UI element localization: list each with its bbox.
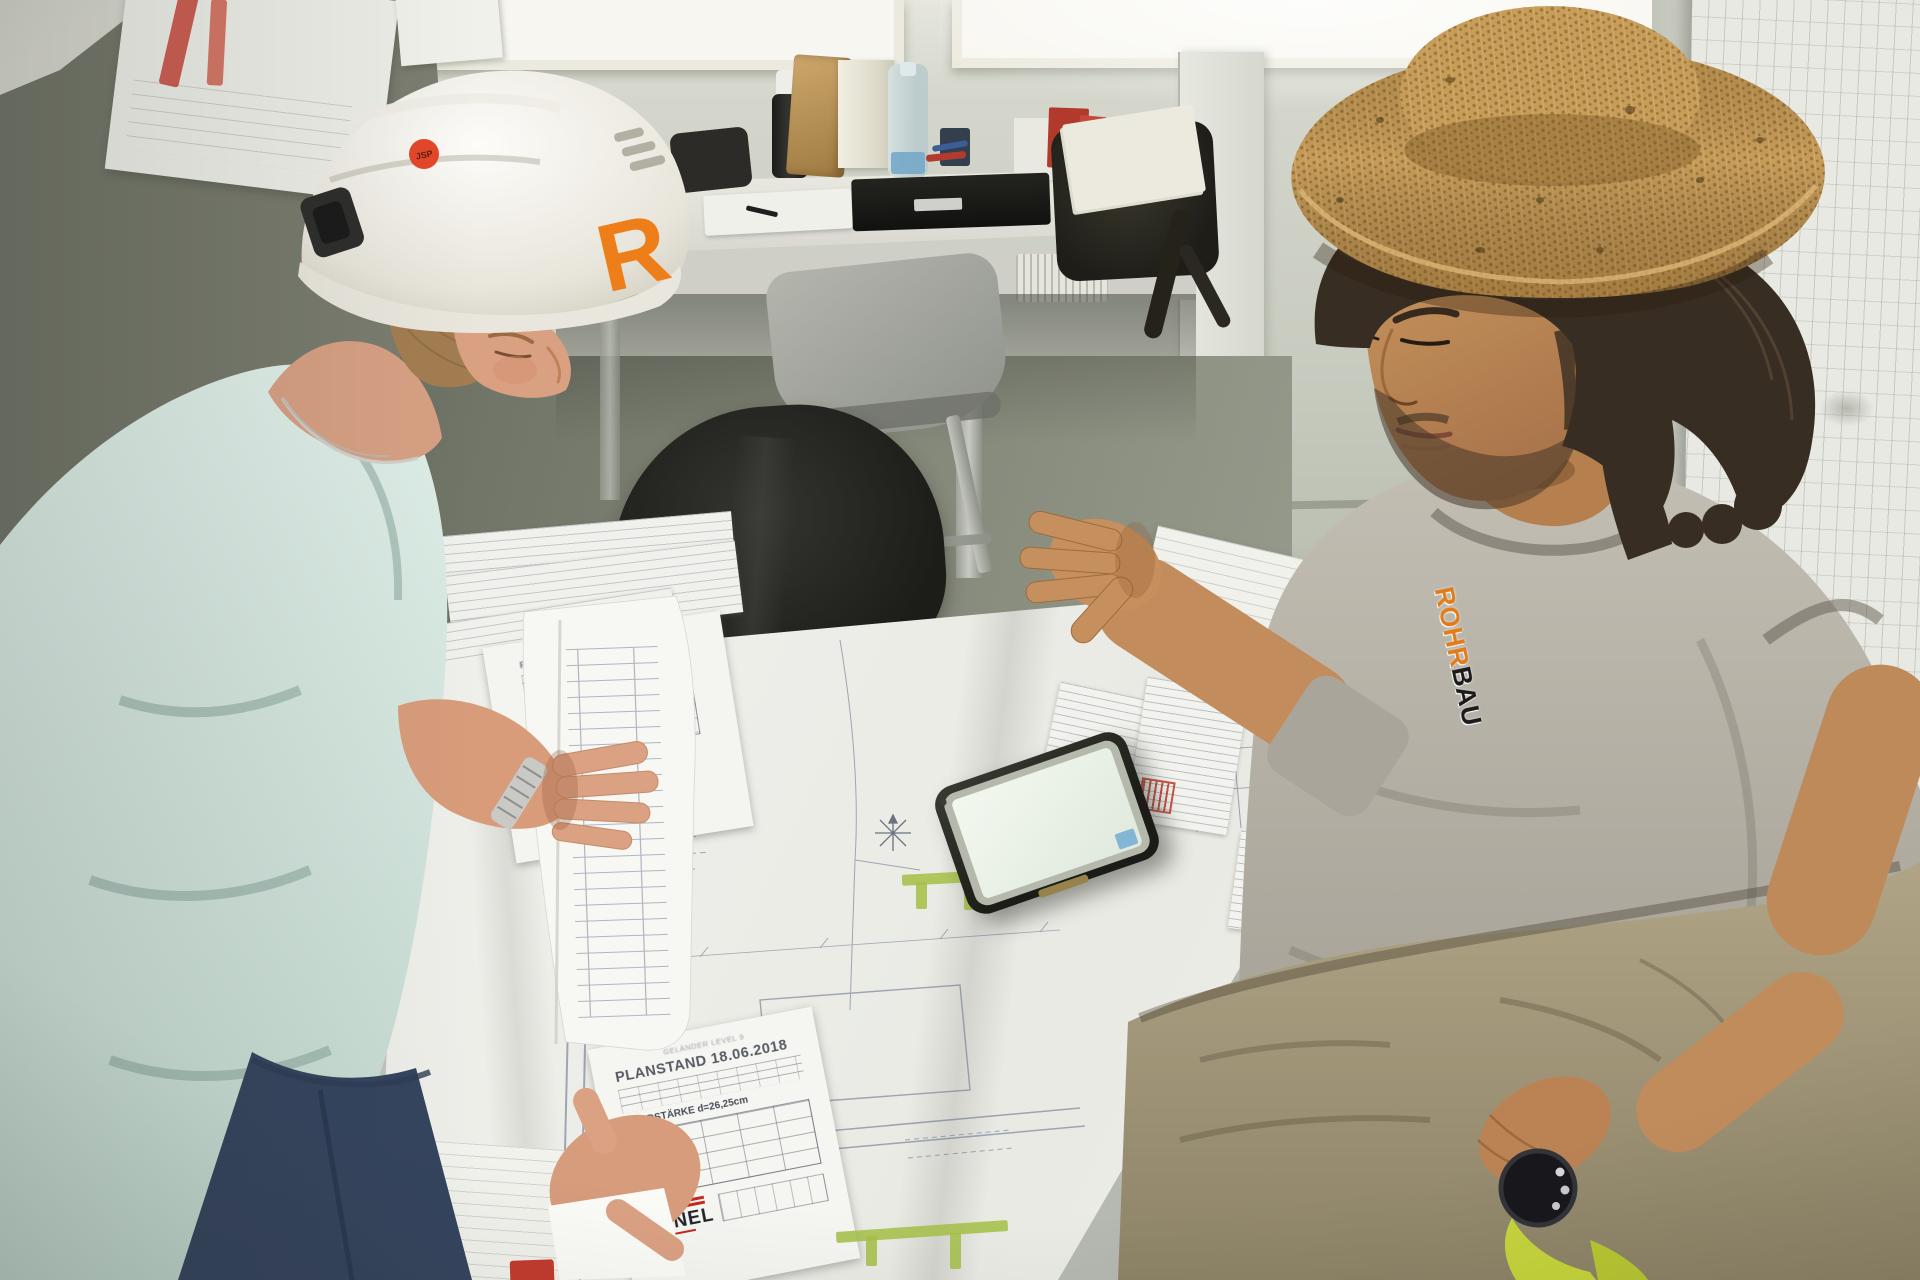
site-office-photo: PLANSTAND 14.06.2018 HANEL GELÄNDER LEVE… [0,0,1920,1280]
worker-left: JSP R [0,71,722,1280]
straw-hat [1291,6,1825,309]
hard-hat: JSP R [298,71,690,333]
knuckle-shading [542,750,578,830]
watch-button [1552,1202,1560,1210]
cheek [493,356,537,384]
lower-hand [528,1084,722,1280]
workers: JSP R [0,0,1920,1280]
watch-button [1556,1168,1565,1177]
knuckle-shading [1115,522,1155,598]
watch-button [1561,1186,1570,1195]
hat-band-shadow [1404,114,1700,186]
